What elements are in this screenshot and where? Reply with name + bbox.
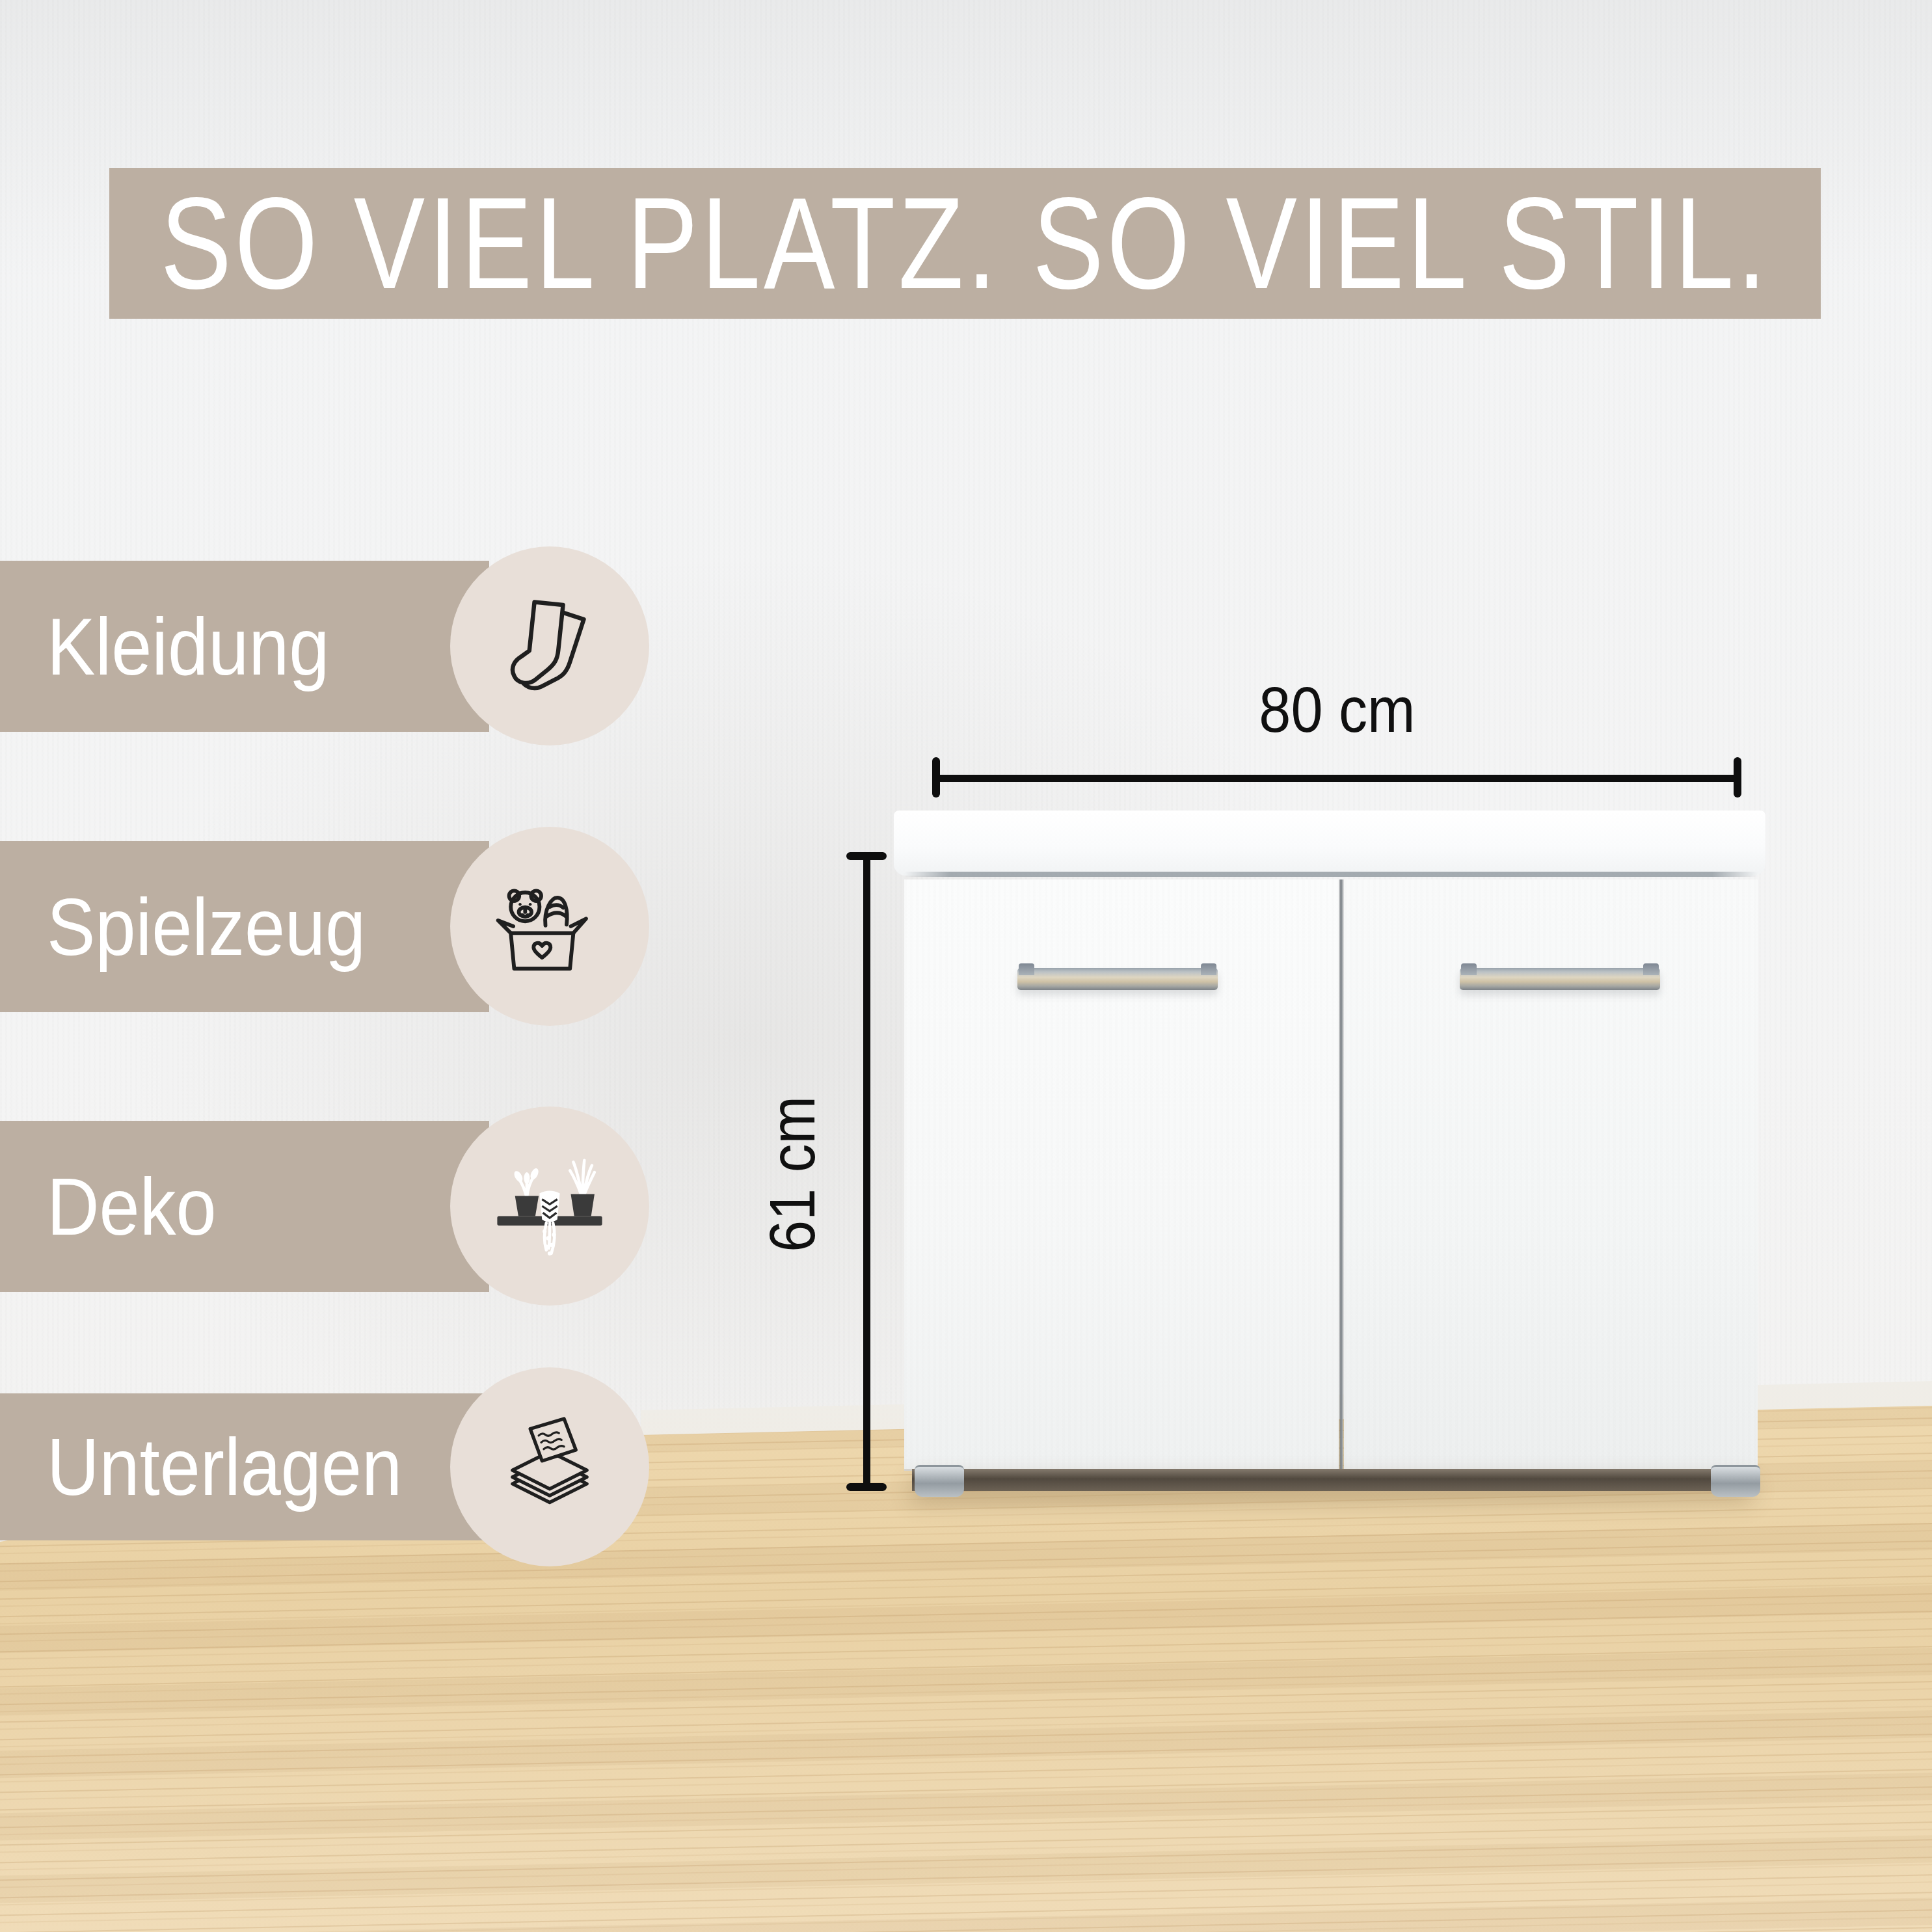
height-dimension-top-cap [846, 852, 887, 860]
shelf-plants-icon [490, 1147, 609, 1265]
cabinet-right-foot [1711, 1465, 1760, 1497]
headline-text: SO VIEL PLATZ. SO VIEL STIL. [160, 168, 1769, 318]
cabinet-left-handle [1017, 968, 1218, 990]
socks-icon [490, 587, 609, 705]
feature-label: Unterlagen [0, 1421, 402, 1513]
cabinet-top-panel [894, 811, 1765, 876]
toy-box-icon [490, 867, 609, 986]
feature-bar-unterlagen: Unterlagen [0, 1393, 489, 1540]
product-infographic: SO VIEL PLATZ. SO VIEL STIL. Kleidung Sp… [0, 0, 1932, 1932]
cabinet-base-recess [912, 1469, 1752, 1491]
cabinet-right-handle [1460, 968, 1660, 990]
height-dimension-bottom-cap [846, 1483, 887, 1491]
width-dimension-label: 80 cm [1164, 673, 1509, 747]
feature-label: Kleidung [0, 600, 329, 693]
feature-icon-circle [450, 827, 649, 1026]
width-dimension-line [937, 775, 1737, 782]
feature-icon-circle [450, 1367, 649, 1566]
feature-bar-kleidung: Kleidung [0, 561, 489, 732]
headline-banner: SO VIEL PLATZ. SO VIEL STIL. [109, 168, 1821, 319]
width-dimension-right-cap [1734, 757, 1741, 798]
feature-icon-circle [450, 1107, 649, 1306]
cabinet-top-shadow-line [904, 872, 1758, 877]
feature-label: Deko [0, 1161, 217, 1253]
feature-bar-spielzeug: Spielzeug [0, 841, 489, 1012]
paper-stack-icon [490, 1408, 609, 1526]
width-dimension-left-cap [932, 757, 940, 798]
height-dimension-label: 61 cm [756, 1088, 829, 1261]
feature-icon-circle [450, 546, 649, 745]
feature-bar-deko: Deko [0, 1121, 489, 1292]
feature-label: Spielzeug [0, 881, 366, 973]
height-dimension-line [863, 856, 870, 1487]
cabinet-left-foot [915, 1465, 964, 1497]
cabinet-door-gap [1339, 879, 1344, 1469]
